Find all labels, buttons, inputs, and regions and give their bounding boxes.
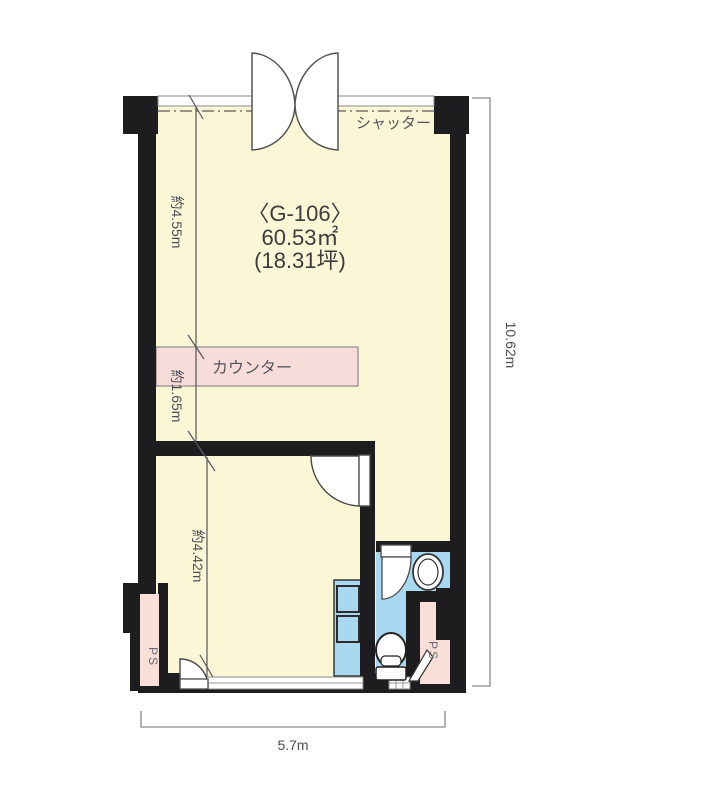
dim-total-width-label: 5.7m: [277, 737, 308, 753]
counter-label: カウンター: [212, 359, 292, 377]
floorplan-canvas: 〈G-106〉 60.53㎡ (18.31坪) シャッター カウンター 約4.5…: [0, 0, 721, 800]
entrance-door-leaf: [180, 679, 208, 689]
sink: [413, 554, 443, 590]
floorplan-svg: 〈G-106〉 60.53㎡ (18.31坪) シャッター カウンター 約4.5…: [0, 0, 721, 800]
wall-ps-left-inner: [158, 583, 168, 691]
shutter-label: シャッター: [356, 115, 431, 132]
dim-lower-label: 約4.42m: [190, 530, 206, 583]
dim-upper-label: 約4.55m: [169, 196, 185, 249]
bathroom-door-leaf: [381, 545, 411, 557]
kitchen-unit: [334, 580, 364, 676]
toilet-tank: [376, 667, 406, 680]
ps-left-label: PS: [146, 647, 160, 667]
kitchen-sink-bottom: [337, 616, 359, 642]
room-id-label: 〈G-106〉: [247, 201, 352, 226]
interior-door-leaf: [359, 455, 370, 506]
dim-total-height-label: 10.62m: [503, 322, 519, 369]
ps-right-label: PS: [426, 641, 440, 661]
ps-shaft-left: [140, 594, 159, 686]
dim-counter-label: 約1.65m: [169, 370, 185, 423]
area-m2-label: 60.53㎡: [261, 225, 338, 250]
pillar-mid-right: [436, 588, 466, 640]
area-tsubo-label: (18.31坪): [254, 248, 346, 273]
kitchen-sink-top: [337, 586, 359, 612]
toilet-seat: [381, 656, 401, 666]
wall-interior-horizontal: [156, 441, 375, 456]
